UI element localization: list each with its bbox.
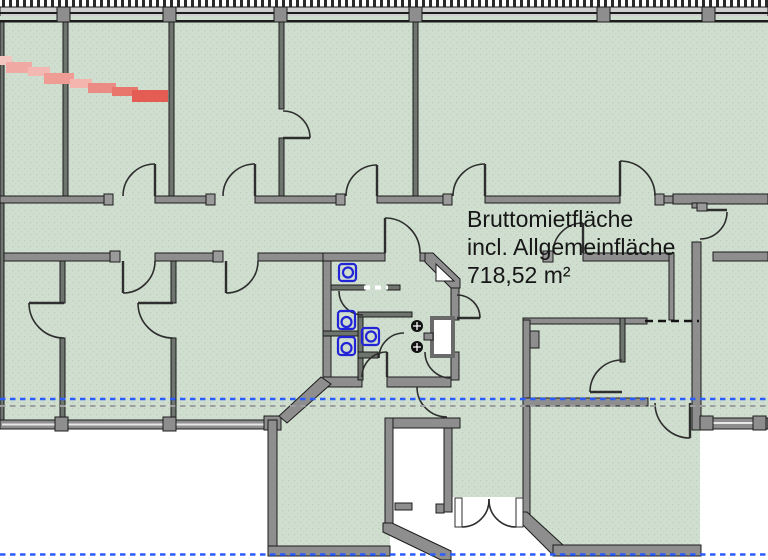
- mullion-post: [597, 7, 610, 22]
- wall-segment: [4, 253, 110, 261]
- wall-segment: [387, 377, 451, 387]
- wall-hatch: [0, 0, 768, 7]
- shaft-stub: [436, 504, 444, 513]
- wall-segment: [377, 196, 448, 203]
- door-jamb: [655, 194, 664, 205]
- wall-segment: [620, 318, 625, 362]
- wall-segment: [523, 320, 530, 400]
- facade-window-band-top: [0, 0, 768, 22]
- wall-segment: [713, 252, 768, 261]
- door-jamb: [110, 251, 120, 262]
- door-jamb: [697, 203, 707, 211]
- door-jamb: [443, 194, 452, 205]
- wall-segment: [323, 261, 331, 380]
- wall-segment: [169, 22, 174, 196]
- wall-segment: [171, 261, 176, 303]
- red-mark: [132, 90, 168, 102]
- wall-segment: [60, 338, 65, 420]
- area-annotation-line3: 718,52 m²: [467, 262, 571, 288]
- wall-segment: [323, 253, 385, 261]
- wall-segment: [0, 196, 104, 203]
- wall-segment: [258, 253, 323, 261]
- area-annotation-line2: incl. Allgemeinfläche: [467, 234, 675, 260]
- wall-segment: [451, 288, 459, 320]
- mullion-post: [57, 7, 70, 22]
- shaft-wall: [385, 418, 460, 428]
- area-annotation-line1: Bruttomietfläche: [467, 206, 633, 232]
- shaft-stub: [395, 503, 412, 510]
- wall-segment: [358, 312, 412, 317]
- door-jamb: [206, 194, 215, 205]
- wall-segment: [279, 138, 284, 196]
- floor-area: [452, 420, 523, 497]
- wall-segment-thick: [673, 194, 768, 204]
- mullion-post: [409, 7, 422, 22]
- red-mark: [88, 83, 116, 93]
- wall-segment: [171, 338, 176, 420]
- window-line: [0, 20, 768, 22]
- door-leaf: [516, 498, 523, 527]
- wall-segment: [523, 318, 647, 324]
- window-line: [2, 424, 270, 426]
- mullion-post: [274, 7, 287, 22]
- wall-segment: [387, 285, 400, 290]
- wall-segment: [413, 22, 418, 196]
- window-line: [0, 12, 768, 14]
- door-jamb: [104, 194, 113, 205]
- door-jamb: [336, 194, 345, 205]
- shaft-wall: [444, 428, 452, 512]
- red-mark: [44, 73, 74, 84]
- wall-segment: [60, 261, 65, 303]
- wall-segment: [669, 253, 674, 320]
- wall-segment: [664, 196, 673, 203]
- mullion-post: [700, 416, 713, 430]
- door-arc: [489, 499, 516, 527]
- window-line: [0, 16, 768, 20]
- wall-segment: [255, 196, 341, 203]
- wall-segment: [155, 253, 213, 261]
- wall-segment: [485, 196, 620, 203]
- door-leaf: [455, 498, 462, 527]
- wall-segment: [331, 285, 365, 290]
- shaft-wall: [385, 418, 393, 530]
- mullion-post: [163, 417, 176, 431]
- wall-segment: [63, 22, 68, 196]
- floor-plan-canvas: Bruttomietfläche incl. Allgemeinfläche 7…: [0, 0, 768, 560]
- mullion-post: [753, 416, 766, 430]
- wall-segment: [268, 420, 277, 556]
- mullion-post: [163, 7, 176, 22]
- mullion-post: [55, 417, 68, 431]
- wall-stub: [530, 331, 539, 348]
- wall-segment: [155, 196, 206, 203]
- door-arc: [462, 499, 489, 527]
- floor-area: [277, 420, 390, 546]
- floor-area: [523, 420, 700, 546]
- wall-segment: [0, 22, 4, 420]
- floor-area: [0, 10, 768, 420]
- mullion-post: [702, 7, 715, 22]
- door-jamb: [213, 251, 223, 262]
- wall-segment: [323, 331, 358, 336]
- floor-drain-icon: [411, 341, 423, 353]
- wall-segment: [523, 406, 530, 525]
- wall-segment-thick: [692, 242, 701, 430]
- floor-drain-icon: [411, 320, 423, 332]
- wall-segment: [279, 22, 284, 109]
